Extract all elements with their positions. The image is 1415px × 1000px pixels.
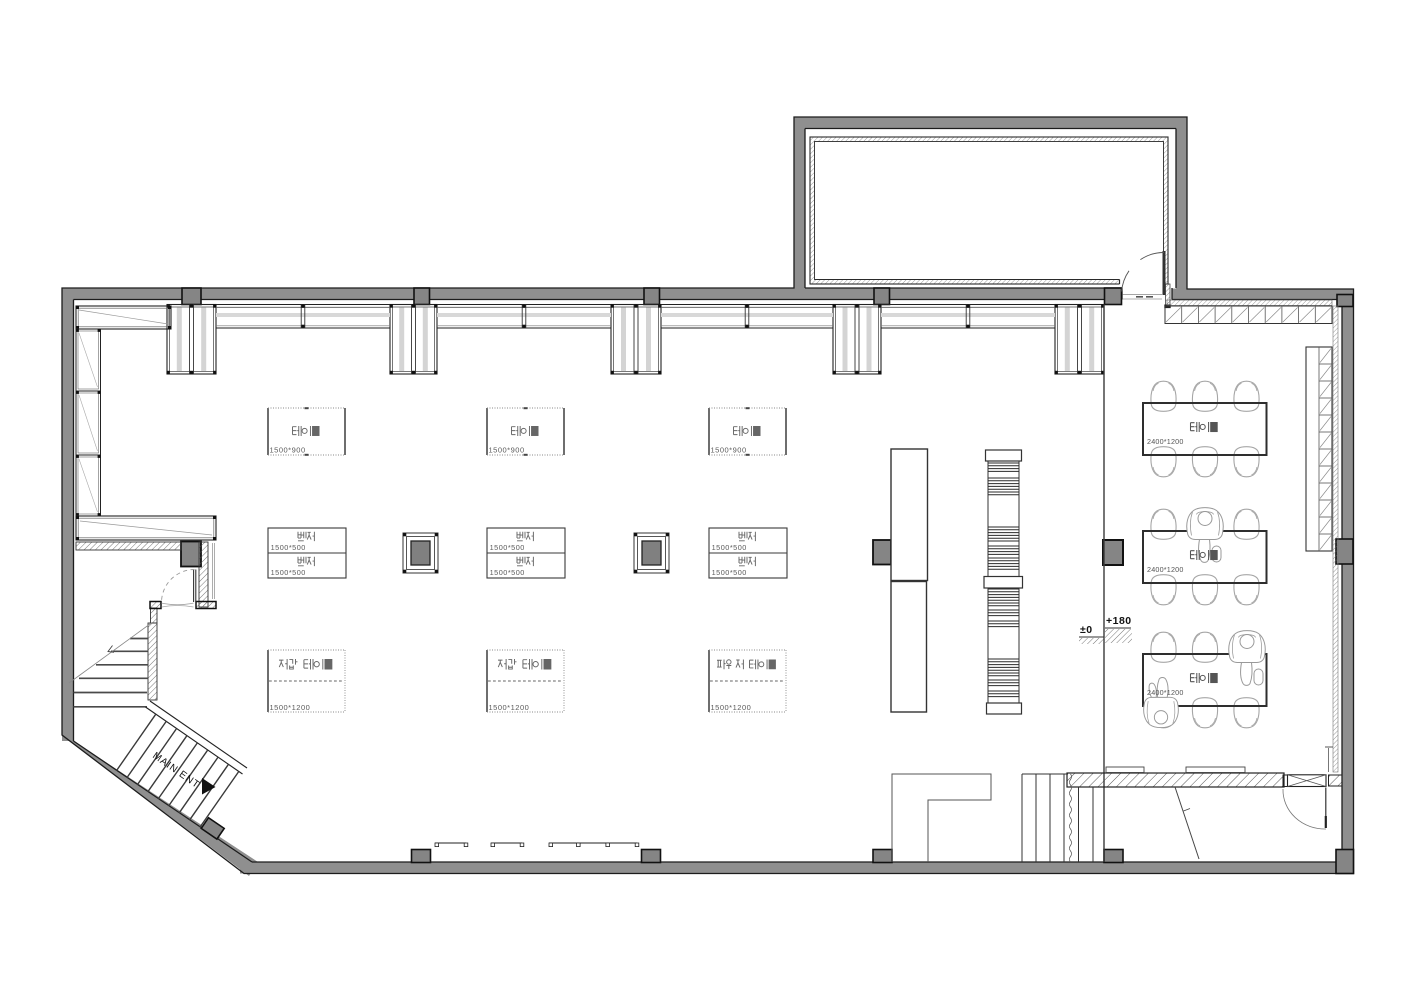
svg-text:2400*1200: 2400*1200	[1147, 437, 1184, 446]
svg-text:1500*500: 1500*500	[271, 543, 306, 552]
svg-text:1500*900: 1500*900	[489, 446, 525, 455]
svg-text:1500*900: 1500*900	[711, 446, 747, 455]
svg-text:±0: ±0	[1080, 624, 1093, 636]
svg-text:1500*500: 1500*500	[712, 568, 747, 577]
svg-text:1500*500: 1500*500	[712, 543, 747, 552]
svg-text:2400*1200: 2400*1200	[1147, 688, 1184, 697]
svg-text:1500*500: 1500*500	[271, 568, 306, 577]
svg-text:1500*1200: 1500*1200	[489, 703, 530, 712]
svg-text:1500*900: 1500*900	[270, 446, 306, 455]
svg-text:1500*500: 1500*500	[490, 568, 525, 577]
svg-text:2400*1200: 2400*1200	[1147, 565, 1184, 574]
svg-text:+180: +180	[1106, 615, 1132, 627]
svg-text:1500*1200: 1500*1200	[270, 703, 311, 712]
svg-text:1500*500: 1500*500	[490, 543, 525, 552]
svg-text:1500*1200: 1500*1200	[711, 703, 752, 712]
